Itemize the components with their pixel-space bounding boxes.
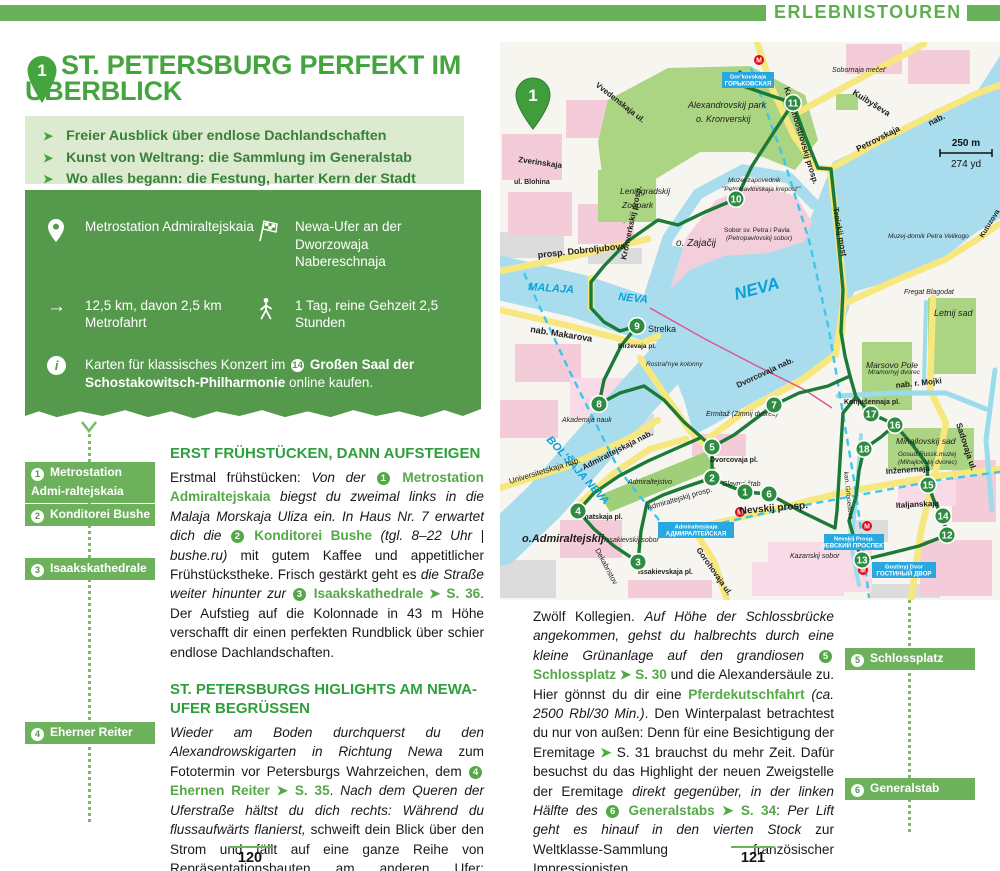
svg-text:Issakievskaja pl.: Issakievskaja pl. — [638, 569, 693, 576]
svg-text:1: 1 — [742, 488, 748, 499]
svg-text:АДМИРАЛТЕЙСКАЯ: АДМИРАЛТЕЙСКАЯ — [666, 530, 727, 538]
svg-text:Muzej-domik Petra Velikogo: Muzej-domik Petra Velikogo — [888, 233, 969, 240]
page-number-rule — [228, 846, 272, 848]
svg-text:ul. Blohina: ul. Blohina — [514, 179, 550, 186]
map-marker-17: 17 — [863, 406, 880, 423]
svg-text:3: 3 — [635, 558, 641, 569]
finish-flag-icon — [257, 218, 295, 271]
map-marker-14: 14 — [935, 508, 952, 525]
margin-label-5: 5Schlossplatz — [845, 648, 975, 670]
location-pin-icon — [47, 218, 85, 271]
map-marker-18: 18 — [856, 441, 873, 458]
svg-text:9: 9 — [634, 322, 640, 333]
map-marker-8: 8 — [591, 396, 608, 413]
svg-text:Admiraltejstvo: Admiraltejstvo — [627, 479, 672, 486]
svg-text:Birževaja pl.: Birževaja pl. — [618, 343, 656, 350]
svg-text:2: 2 — [709, 474, 715, 485]
svg-text:Sobor sv. Petra i Pavla: Sobor sv. Petra i Pavla — [724, 227, 790, 234]
svg-text:Akademija nauk: Akademija nauk — [561, 417, 612, 424]
highlight-item: ➤Kunst von Weltrang: die Sammlung im Gen… — [43, 148, 464, 170]
svg-text:Kazanskij sobor: Kazanskij sobor — [790, 553, 840, 560]
svg-text:ГОРЬКОВСКАЯ: ГОРЬКОВСКАЯ — [725, 81, 772, 88]
svg-text:Sobornaja mečet': Sobornaja mečet' — [832, 67, 887, 74]
svg-text:18: 18 — [858, 445, 870, 456]
svg-text:o. Kronverskij: o. Kronverskij — [696, 114, 752, 124]
duration-label: 1 Tag, reine Gehzeit 2,5 Stunden — [295, 297, 461, 332]
route-arrow-icon: → — [47, 297, 85, 332]
map-marker-5: 5 — [704, 439, 721, 456]
bullet-arrow-icon: ➤ — [43, 169, 53, 191]
page-number-right: 121 — [723, 850, 783, 866]
svg-text:НЕВСКИЙ ПРОСПЕКТ: НЕВСКИЙ ПРОСПЕКТ — [821, 542, 887, 550]
section-heading: ERST FRÜHSTÜCKEN, DANN AUFSTEIGEN — [170, 444, 484, 463]
margin-label-2: 2Konditorei Bushe — [25, 504, 155, 526]
svg-text:Muzej-zapovednik: Muzej-zapovednik — [728, 177, 781, 184]
page-number-left: 120 — [220, 850, 280, 866]
map-marker-10: 10 — [728, 191, 745, 208]
svg-text:274 yd: 274 yd — [951, 159, 981, 170]
page-number-rule — [731, 846, 775, 848]
svg-text:Fregat Blagodat: Fregat Blagodat — [904, 289, 955, 296]
svg-text:Konjušennaja pl.: Konjušennaja pl. — [844, 399, 900, 406]
tour-highlights: ➤Freier Ausblick über endlose Dachlandsc… — [25, 116, 464, 184]
svg-text:1: 1 — [528, 86, 537, 105]
svg-text:Dvorcovaja pl.: Dvorcovaja pl. — [710, 457, 758, 464]
svg-text:12: 12 — [941, 531, 953, 542]
walking-person-icon — [257, 297, 295, 332]
section-paragraph: Zwölf Kollegien. Auf Höhe der Schlossbrü… — [533, 607, 834, 871]
svg-text:Rostral'nye kolonny: Rostral'nye kolonny — [646, 361, 703, 368]
bullet-arrow-icon: ➤ — [43, 126, 53, 148]
highlight-item: ➤Wo alles begann: die Festung, harter Ke… — [43, 169, 464, 191]
margin-label-4: 4Eherner Reiter — [25, 722, 155, 744]
book-spread: ERLEBNISTOUREN 1 ST. PETERSBURG PERFEKT … — [0, 0, 1000, 871]
svg-text:Gosud.Russk.muzej: Gosud.Russk.muzej — [898, 451, 957, 458]
highlight-item: ➤Freier Ausblick über endlose Dachlandsc… — [43, 126, 464, 148]
svg-text:6: 6 — [766, 490, 772, 501]
page-title: ST. PETERSBURG PERFEKT IM ÜBERBLICK — [25, 52, 495, 104]
margin-label-3: 3Isaakskathedrale — [25, 558, 155, 580]
tour-infobox: Metrostation Admiraltejskaia Newa-Ufer a… — [25, 190, 481, 423]
left-text-column: ERST FRÜHSTÜCKEN, DANN AUFSTEIGEN Erstma… — [170, 444, 484, 871]
end-point-label: Newa-Ufer an der Dworzowaja Nabereschnaj… — [295, 218, 461, 271]
svg-text:8: 8 — [596, 400, 602, 411]
svg-text:14: 14 — [937, 512, 949, 523]
svg-text:Issakievskij sobor: Issakievskij sobor — [604, 537, 660, 544]
timeline-arrow-icon — [80, 421, 98, 433]
start-point-label: Metrostation Admiraltejskaia — [85, 218, 257, 271]
svg-text:11: 11 — [788, 99, 799, 110]
map-marker-3: 3 — [630, 554, 647, 571]
svg-text:16: 16 — [889, 421, 901, 432]
svg-text:250 m: 250 m — [952, 138, 980, 149]
svg-text:o. Zajačij: o. Zajačij — [676, 238, 717, 249]
section-heading: ST. PETERSBURGS HIGLIGHTS AM NEWA-UFER B… — [170, 680, 484, 718]
svg-text:Letnij sad: Letnij sad — [934, 308, 974, 318]
svg-text:Mramornyj dvorec: Mramornyj dvorec — [868, 369, 921, 376]
svg-text:ГОСТИНЫЙ ДВОР: ГОСТИНЫЙ ДВОР — [876, 570, 931, 578]
distance-label: 12,5 km, davon 2,5 km Metrofahrt — [85, 297, 257, 332]
map-marker-16: 16 — [887, 417, 904, 434]
map-marker-13: 13 — [854, 552, 871, 569]
right-text-column: Zwölf Kollegien. Auf Höhe der Schlossbrü… — [533, 607, 834, 871]
svg-text:Leningradskij: Leningradskij — [620, 186, 671, 196]
svg-text:13: 13 — [856, 556, 868, 567]
svg-text:17: 17 — [865, 410, 877, 421]
svg-text:15: 15 — [922, 481, 934, 492]
map-marker-2: 2 — [704, 470, 721, 487]
section-header: ERLEBNISTOUREN — [774, 2, 962, 23]
map-marker-7: 7 — [766, 397, 783, 414]
city-map: Gor'kovskajaГОРЬКОВСКАЯAdmiraltejskajaАД… — [500, 42, 1000, 600]
svg-text:М: М — [864, 524, 870, 531]
header-bar-right — [967, 5, 1000, 21]
info-icon: i — [47, 356, 85, 392]
svg-text:Ermitaž (Zimnij dvorec): Ermitaž (Zimnij dvorec) — [706, 411, 778, 418]
svg-text:Strelka: Strelka — [648, 324, 676, 334]
svg-text:Alexandrovskij park: Alexandrovskij park — [687, 100, 767, 110]
bullet-arrow-icon: ➤ — [43, 148, 53, 170]
section-paragraph: Wieder am Boden durchquerst du den Alexa… — [170, 723, 484, 871]
svg-text:Zoopark: Zoopark — [621, 200, 654, 210]
map-marker-4: 4 — [570, 503, 587, 520]
tour-tip: Karten für klassisches Konzert im 14 Gro… — [85, 356, 461, 392]
svg-text:(Petropavlovskij sobor): (Petropavlovskij sobor) — [726, 235, 792, 242]
svg-text:o.Admiraltejskij: o.Admiraltejskij — [522, 533, 605, 545]
map-marker-6: 6 — [761, 486, 778, 503]
map-marker-9: 9 — [629, 318, 646, 335]
header-bar — [0, 5, 766, 21]
svg-text:4: 4 — [575, 507, 581, 518]
map-marker-12: 12 — [939, 527, 956, 544]
margin-label-6: 6Generalstab — [845, 778, 975, 800]
svg-text:Mihajlovskij sad: Mihajlovskij sad — [896, 436, 956, 446]
svg-text:7: 7 — [771, 401, 777, 412]
map-marker-1: 1 — [737, 484, 754, 501]
svg-text:М: М — [756, 58, 762, 65]
section-paragraph: Erstmal frühstücken: Von der 1 Metrostat… — [170, 468, 484, 662]
svg-text:5: 5 — [709, 443, 715, 454]
margin-label-1: 1Metrostation Admi-raltejskaia — [25, 462, 155, 503]
svg-text:10: 10 — [730, 195, 742, 206]
map-marker-11: 11 — [785, 95, 802, 112]
map-marker-15: 15 — [920, 477, 937, 494]
